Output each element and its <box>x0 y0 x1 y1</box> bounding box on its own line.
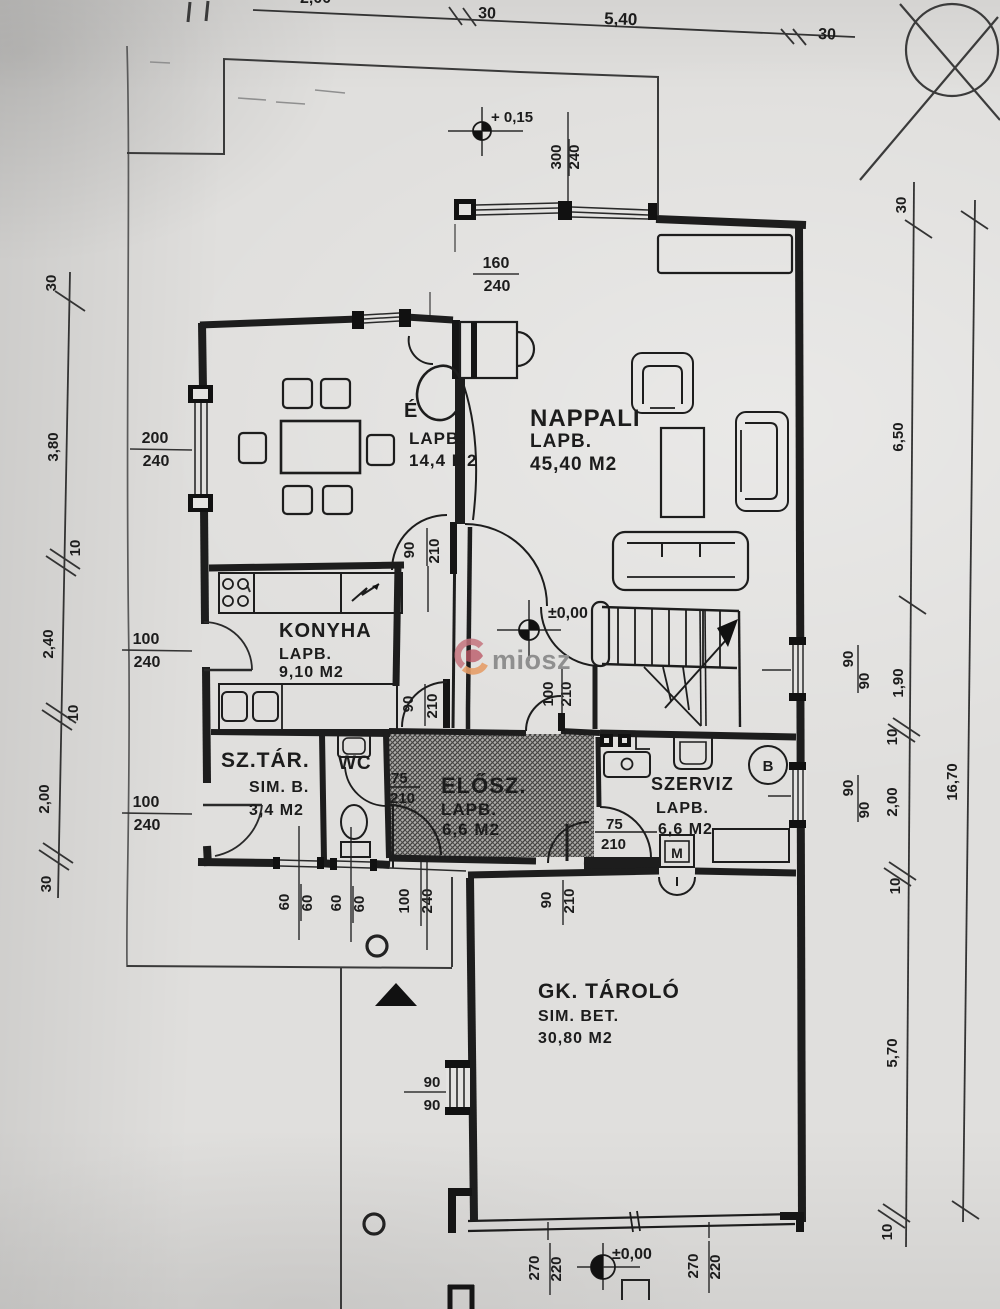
svg-text:LAPB.: LAPB. <box>656 800 709 817</box>
svg-text:90: 90 <box>424 1074 441 1091</box>
svg-text:10: 10 <box>879 1224 896 1241</box>
svg-text:10: 10 <box>65 705 82 722</box>
svg-text:5,70: 5,70 <box>884 1038 901 1067</box>
svg-text:210: 210 <box>601 836 626 853</box>
svg-text:+ 0,15: + 0,15 <box>491 109 533 126</box>
svg-text:100: 100 <box>133 631 160 648</box>
svg-text:2,40: 2,40 <box>40 629 57 658</box>
svg-text:60: 60 <box>328 895 345 912</box>
svg-text:75: 75 <box>606 816 623 833</box>
svg-text:30: 30 <box>818 26 836 44</box>
svg-text:300: 300 <box>548 144 565 169</box>
svg-text:1,90: 1,90 <box>890 668 907 697</box>
svg-text:240: 240 <box>143 453 170 470</box>
svg-text:200: 200 <box>142 430 169 447</box>
svg-text:30,80 M2: 30,80 M2 <box>538 1030 613 1047</box>
svg-text:30: 30 <box>38 876 55 893</box>
svg-text:miosz: miosz <box>492 645 571 675</box>
svg-text:100: 100 <box>540 681 557 706</box>
svg-text:LAPB.: LAPB. <box>409 429 465 448</box>
svg-text:NAPPALI: NAPPALI <box>530 405 641 432</box>
svg-text:90: 90 <box>538 892 555 909</box>
svg-text:5,40: 5,40 <box>604 9 638 29</box>
svg-text:WC: WC <box>338 753 372 774</box>
svg-text:6,6 M2: 6,6 M2 <box>442 820 500 839</box>
svg-text:270: 270 <box>526 1255 543 1280</box>
svg-text:270: 270 <box>685 1253 702 1278</box>
svg-text:90: 90 <box>401 542 418 559</box>
svg-text:60: 60 <box>276 894 293 911</box>
svg-text:210: 210 <box>426 538 443 563</box>
svg-text:16,70: 16,70 <box>944 763 961 801</box>
svg-text:SIM. BET.: SIM. BET. <box>538 1008 619 1025</box>
svg-text:10: 10 <box>887 878 904 895</box>
svg-text:100: 100 <box>133 794 160 811</box>
svg-text:B: B <box>763 758 774 775</box>
svg-text:210: 210 <box>390 790 415 807</box>
svg-text:9,10 M2: 9,10 M2 <box>279 664 344 681</box>
svg-text:2,00: 2,00 <box>884 787 901 816</box>
svg-text:±0,00: ±0,00 <box>548 605 588 622</box>
svg-text:10: 10 <box>884 729 901 746</box>
svg-text:LAPB.: LAPB. <box>441 800 497 819</box>
svg-text:90: 90 <box>424 1097 441 1114</box>
svg-text:45,40 M2: 45,40 M2 <box>530 454 617 475</box>
svg-text:2,00: 2,00 <box>300 0 331 7</box>
svg-text:3,4 M2: 3,4 M2 <box>249 802 304 819</box>
svg-text:SZERVIZ: SZERVIZ <box>651 774 734 794</box>
svg-text:GK. TÁROLÓ: GK. TÁROLÓ <box>538 979 680 1003</box>
svg-text:6,6 M2: 6,6 M2 <box>658 821 713 838</box>
svg-text:75: 75 <box>391 770 408 787</box>
svg-text:2,00: 2,00 <box>36 784 53 813</box>
svg-text:90: 90 <box>840 780 857 797</box>
svg-text:160: 160 <box>483 255 510 272</box>
svg-text:210: 210 <box>424 693 441 718</box>
svg-text:100: 100 <box>396 888 413 913</box>
svg-text:10: 10 <box>67 540 84 557</box>
svg-text:30: 30 <box>893 197 910 214</box>
svg-text:KONYHA: KONYHA <box>279 620 372 642</box>
svg-text:6,50: 6,50 <box>890 422 907 451</box>
svg-text:É: É <box>404 399 418 422</box>
svg-text:SIM. B.: SIM. B. <box>249 779 309 796</box>
svg-text:210: 210 <box>558 681 575 706</box>
svg-text:240: 240 <box>484 278 511 295</box>
svg-text:30: 30 <box>43 275 60 292</box>
svg-text:ELŐSZ.: ELŐSZ. <box>441 773 526 798</box>
svg-text:240: 240 <box>134 817 161 834</box>
svg-text:90: 90 <box>840 651 857 668</box>
svg-text:14,4 M2: 14,4 M2 <box>409 451 477 470</box>
svg-text:SZ.TÁR.: SZ.TÁR. <box>221 749 310 772</box>
svg-text:30: 30 <box>478 5 496 23</box>
svg-text:LAPB.: LAPB. <box>530 431 592 452</box>
svg-text:±0,00: ±0,00 <box>612 1246 652 1263</box>
svg-text:3,80: 3,80 <box>45 432 62 461</box>
svg-text:240: 240 <box>134 654 161 671</box>
svg-text:M: M <box>671 845 683 861</box>
svg-text:LAPB.: LAPB. <box>279 646 332 663</box>
